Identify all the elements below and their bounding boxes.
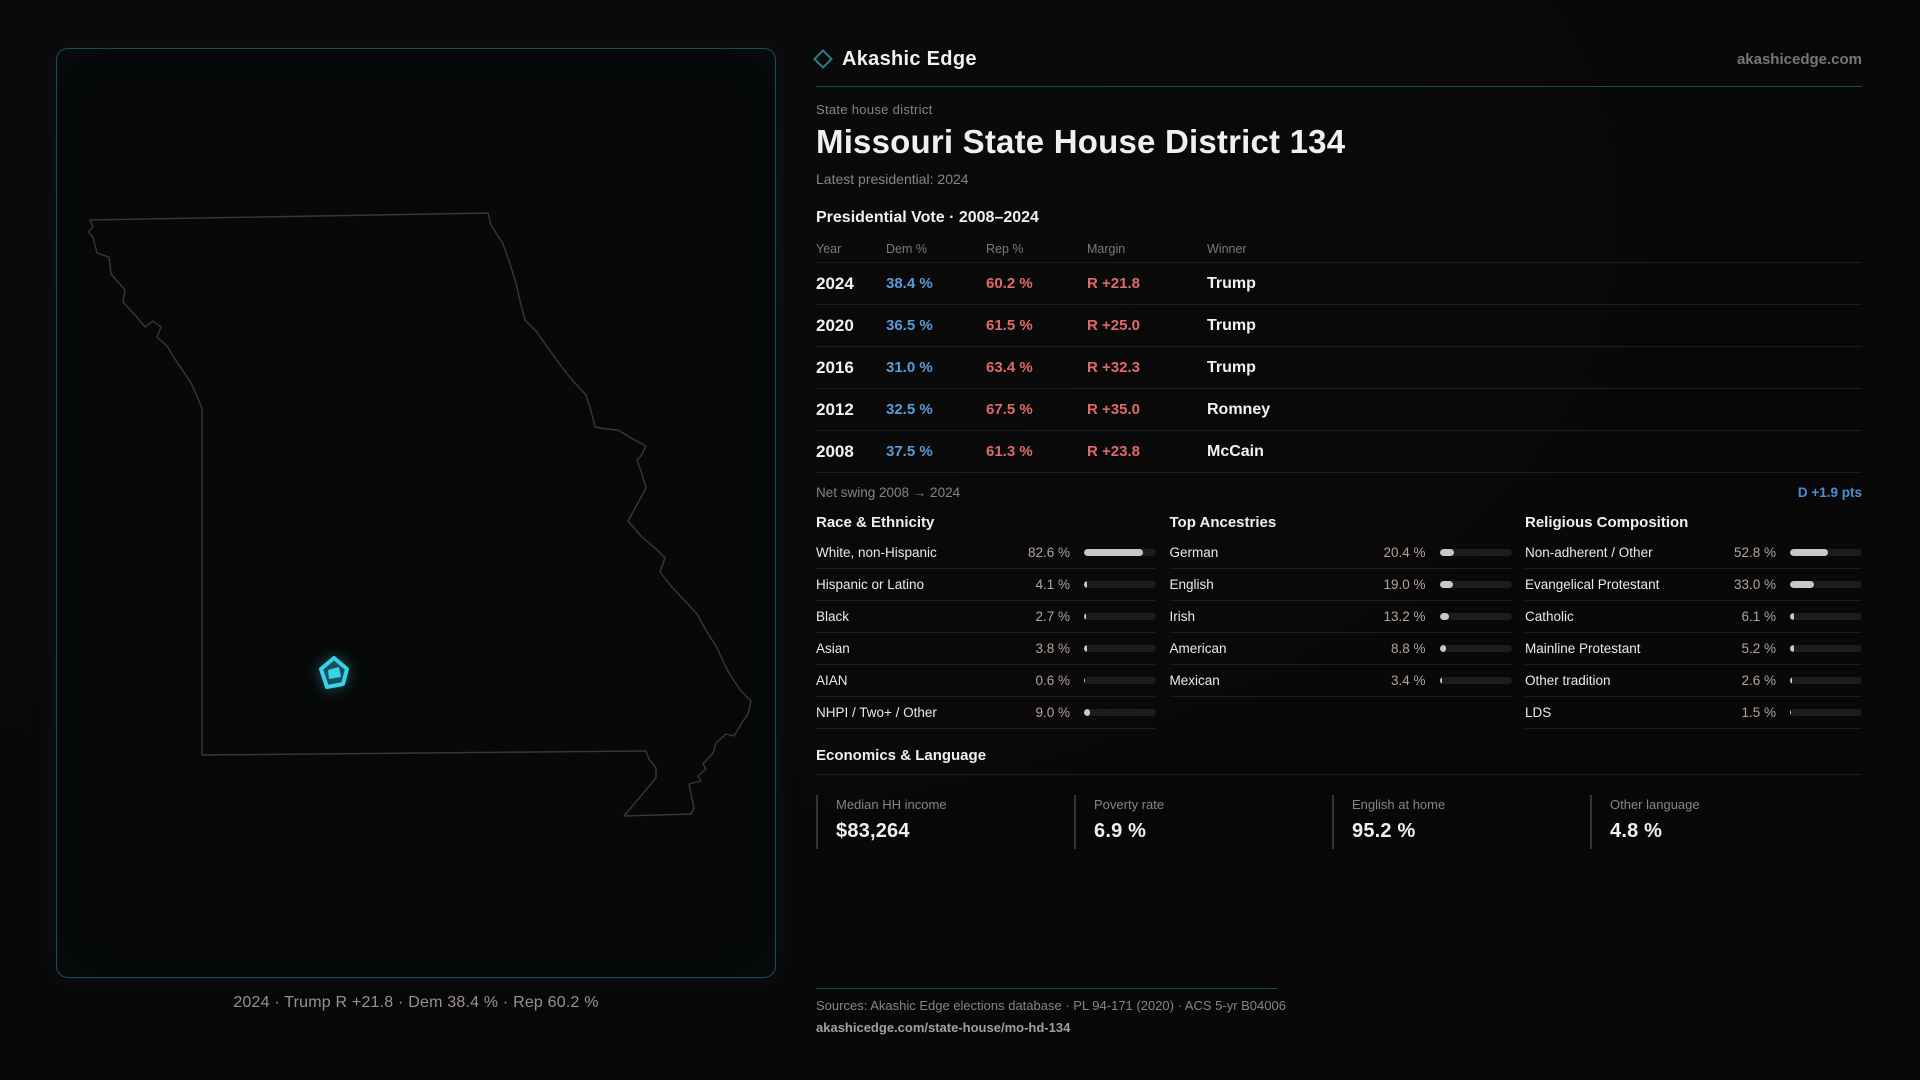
demographic-label: Mainline Protestant xyxy=(1525,641,1724,656)
vote-table-row: 202438.4 %60.2 %R +21.8Trump xyxy=(816,263,1862,305)
cell-rep-pct: 67.5 % xyxy=(986,401,1087,418)
brand-header: Akashic Edge akashicedge.com xyxy=(816,38,1862,80)
state-map-panel xyxy=(56,48,776,978)
demographic-bar xyxy=(1084,581,1156,588)
column-header-rep: Rep % xyxy=(986,242,1087,256)
demographic-label: AIAN xyxy=(816,673,1018,688)
cell-margin: R +23.8 xyxy=(1087,443,1207,460)
demographic-value: 5.2 % xyxy=(1724,641,1776,656)
district-type-eyebrow: State house district xyxy=(816,102,1862,117)
demographic-value: 52.8 % xyxy=(1724,545,1776,560)
demographic-value: 4.1 % xyxy=(1018,577,1070,592)
demographic-value: 2.6 % xyxy=(1724,673,1776,688)
demographic-row: Hispanic or Latino4.1 % xyxy=(816,569,1156,601)
demographic-label: Black xyxy=(816,609,1018,624)
demographic-label: Asian xyxy=(816,641,1018,656)
vote-table-row: 202036.5 %61.5 %R +25.0Trump xyxy=(816,305,1862,347)
demographic-bar-fill xyxy=(1440,581,1454,588)
cell-rep-pct: 63.4 % xyxy=(986,359,1087,376)
cell-year: 2020 xyxy=(816,316,886,336)
demographic-bar xyxy=(1440,613,1512,620)
column-header-winner: Winner xyxy=(1207,242,1862,256)
economics-stat-value: 95.2 % xyxy=(1352,820,1590,843)
demographic-bar-fill xyxy=(1790,709,1791,716)
cell-year: 2016 xyxy=(816,358,886,378)
demographic-label: Non-adherent / Other xyxy=(1525,545,1724,560)
cell-winner: Trump xyxy=(1207,317,1862,335)
demographic-bar-fill xyxy=(1084,581,1087,588)
demographic-bar xyxy=(1440,549,1512,556)
net-swing-label: Net swing 2008 → 2024 xyxy=(816,485,960,500)
demographic-row: AIAN0.6 % xyxy=(816,665,1156,697)
brand-domain-link[interactable]: akashicedge.com xyxy=(1737,51,1862,68)
economics-stat: English at home95.2 % xyxy=(1332,795,1590,849)
demographic-value: 82.6 % xyxy=(1018,545,1070,560)
demographic-row: Other tradition2.6 % xyxy=(1525,665,1862,697)
demographic-column-title: Religious Composition xyxy=(1525,514,1862,531)
economics-stat: Poverty rate6.9 % xyxy=(1074,795,1332,849)
demographic-label: Other tradition xyxy=(1525,673,1724,688)
vote-table-row: 200837.5 %61.3 %R +23.8McCain xyxy=(816,431,1862,473)
demographic-bar xyxy=(1440,677,1512,684)
demographic-column: Religious CompositionNon-adherent / Othe… xyxy=(1525,514,1862,729)
demographic-label: English xyxy=(1170,577,1374,592)
demographic-label: Hispanic or Latino xyxy=(816,577,1018,592)
cell-winner: Trump xyxy=(1207,275,1862,293)
vote-table-row: 201631.0 %63.4 %R +32.3Trump xyxy=(816,347,1862,389)
cell-margin: R +35.0 xyxy=(1087,401,1207,418)
demographic-row: Asian3.8 % xyxy=(816,633,1156,665)
cell-dem-pct: 32.5 % xyxy=(886,401,986,418)
cell-winner: Trump xyxy=(1207,359,1862,377)
demographic-bar xyxy=(1084,709,1156,716)
demographic-column-title: Top Ancestries xyxy=(1170,514,1512,531)
economics-stat-value: 6.9 % xyxy=(1094,820,1332,843)
diamond-logo-icon xyxy=(813,49,833,69)
demographic-row: Non-adherent / Other52.8 % xyxy=(1525,537,1862,569)
cell-year: 2008 xyxy=(816,442,886,462)
cell-rep-pct: 61.3 % xyxy=(986,443,1087,460)
demographic-row: Evangelical Protestant33.0 % xyxy=(1525,569,1862,601)
economics-stat-value: 4.8 % xyxy=(1610,820,1848,843)
demographic-label: White, non-Hispanic xyxy=(816,545,1018,560)
cell-dem-pct: 37.5 % xyxy=(886,443,986,460)
demographic-value: 1.5 % xyxy=(1724,705,1776,720)
cell-dem-pct: 31.0 % xyxy=(886,359,986,376)
demographic-bar xyxy=(1790,677,1862,684)
demographic-row: Mainline Protestant5.2 % xyxy=(1525,633,1862,665)
demographic-label: Irish xyxy=(1170,609,1374,624)
demographic-bar xyxy=(1084,677,1156,684)
demographic-label: American xyxy=(1170,641,1374,656)
demographic-value: 0.6 % xyxy=(1018,673,1070,688)
economics-stat-label: Median HH income xyxy=(836,797,1074,812)
demographic-bar-fill xyxy=(1084,613,1086,620)
demographic-value: 6.1 % xyxy=(1724,609,1776,624)
demographic-bar xyxy=(1790,709,1862,716)
demographic-row: LDS1.5 % xyxy=(1525,697,1862,729)
demographic-row: Black2.7 % xyxy=(816,601,1156,633)
demographic-label: German xyxy=(1170,545,1374,560)
district-marker[interactable] xyxy=(321,658,347,687)
net-swing-value: D +1.9 pts xyxy=(1798,485,1862,500)
missouri-map xyxy=(57,49,777,979)
demographic-label: LDS xyxy=(1525,705,1724,720)
cell-dem-pct: 36.5 % xyxy=(886,317,986,334)
demographic-bar-fill xyxy=(1440,677,1442,684)
vote-table-title: Presidential Vote · 2008–2024 xyxy=(816,209,1862,227)
page-title: Missouri State House District 134 xyxy=(816,123,1862,161)
page: 2024 · Trump R +21.8 · Dem 38.4 % · Rep … xyxy=(0,0,1920,1080)
latest-presidential-note: Latest presidential: 2024 xyxy=(816,171,1862,187)
demographic-row: English19.0 % xyxy=(1170,569,1512,601)
demographic-bar xyxy=(1084,613,1156,620)
demographic-value: 3.4 % xyxy=(1374,673,1426,688)
cell-winner: Romney xyxy=(1207,401,1862,419)
demographic-value: 20.4 % xyxy=(1374,545,1426,560)
demographic-row: American8.8 % xyxy=(1170,633,1512,665)
cell-year: 2024 xyxy=(816,274,886,294)
demographic-bar-fill xyxy=(1790,677,1792,684)
demographic-value: 13.2 % xyxy=(1374,609,1426,624)
footer-permalink-link[interactable]: akashicedge.com/state-house/mo-hd-134 xyxy=(816,1020,1862,1035)
footer-sources: Sources: Akashic Edge elections database… xyxy=(816,998,1862,1013)
demographic-row: Irish13.2 % xyxy=(1170,601,1512,633)
demographic-label: NHPI / Two+ / Other xyxy=(816,705,1018,720)
economics-stats: Median HH income$83,264Poverty rate6.9 %… xyxy=(816,795,1862,849)
demographic-value: 33.0 % xyxy=(1724,577,1776,592)
economics-stat-label: Other language xyxy=(1610,797,1848,812)
demographic-bar xyxy=(1790,645,1862,652)
cell-margin: R +25.0 xyxy=(1087,317,1207,334)
economics-stat-label: Poverty rate xyxy=(1094,797,1332,812)
vote-table-header: YearDem %Rep %MarginWinner xyxy=(816,235,1862,263)
demographic-bar-fill xyxy=(1790,613,1794,620)
cell-dem-pct: 38.4 % xyxy=(886,275,986,292)
column-header-dem: Dem % xyxy=(886,242,986,256)
economics-stat: Other language4.8 % xyxy=(1590,795,1848,849)
demographic-bar xyxy=(1790,613,1862,620)
demographic-row: NHPI / Two+ / Other9.0 % xyxy=(816,697,1156,729)
demographic-bar-fill xyxy=(1790,645,1794,652)
demographic-bar-fill xyxy=(1084,645,1087,652)
demographic-label: Catholic xyxy=(1525,609,1724,624)
footer-divider xyxy=(816,988,1277,989)
cell-rep-pct: 61.5 % xyxy=(986,317,1087,334)
demographic-bar xyxy=(1440,645,1512,652)
demographic-row: Mexican3.4 % xyxy=(1170,665,1512,697)
demographic-bar xyxy=(1790,549,1862,556)
demographic-value: 9.0 % xyxy=(1018,705,1070,720)
vote-table-row: 201232.5 %67.5 %R +35.0Romney xyxy=(816,389,1862,431)
economics-stat: Median HH income$83,264 xyxy=(816,795,1074,849)
demographic-value: 19.0 % xyxy=(1374,577,1426,592)
header-divider xyxy=(816,86,1862,87)
map-caption: 2024 · Trump R +21.8 · Dem 38.4 % · Rep … xyxy=(56,994,776,1012)
demographic-bar xyxy=(1084,645,1156,652)
demographic-column-title: Race & Ethnicity xyxy=(816,514,1156,531)
demographic-bar xyxy=(1440,581,1512,588)
demographic-label: Evangelical Protestant xyxy=(1525,577,1724,592)
demographic-column: Race & EthnicityWhite, non-Hispanic82.6 … xyxy=(816,514,1156,729)
presidential-vote-table: YearDem %Rep %MarginWinner 202438.4 %60.… xyxy=(816,235,1862,473)
demographic-label: Mexican xyxy=(1170,673,1374,688)
demographic-bar xyxy=(1790,581,1862,588)
vote-table-body: 202438.4 %60.2 %R +21.8Trump202036.5 %61… xyxy=(816,263,1862,473)
demographics: Race & EthnicityWhite, non-Hispanic82.6 … xyxy=(816,514,1862,729)
economics-title: Economics & Language xyxy=(816,747,1862,775)
demographic-value: 3.8 % xyxy=(1018,641,1070,656)
cell-margin: R +32.3 xyxy=(1087,359,1207,376)
net-swing-row: Net swing 2008 → 2024 D +1.9 pts xyxy=(816,473,1862,510)
demographic-row: Catholic6.1 % xyxy=(1525,601,1862,633)
demographic-bar-fill xyxy=(1440,549,1455,556)
cell-margin: R +21.8 xyxy=(1087,275,1207,292)
footer: Sources: Akashic Edge elections database… xyxy=(816,988,1862,1035)
demographic-row: White, non-Hispanic82.6 % xyxy=(816,537,1156,569)
report-column: Akashic Edge akashicedge.com State house… xyxy=(816,38,1862,849)
brand-name: Akashic Edge xyxy=(842,48,977,71)
demographic-bar-fill xyxy=(1084,709,1090,716)
economics-stat-value: $83,264 xyxy=(836,820,1074,843)
demographic-bar-fill xyxy=(1790,549,1828,556)
cell-winner: McCain xyxy=(1207,443,1862,461)
cell-rep-pct: 60.2 % xyxy=(986,275,1087,292)
demographic-bar-fill xyxy=(1440,645,1446,652)
demographic-column: Top AncestriesGerman20.4 %English19.0 %I… xyxy=(1170,514,1512,729)
demographic-row: German20.4 % xyxy=(1170,537,1512,569)
missouri-outline xyxy=(88,213,751,816)
demographic-value: 8.8 % xyxy=(1374,641,1426,656)
demographic-bar-fill xyxy=(1084,549,1143,556)
demographic-bar-fill xyxy=(1790,581,1814,588)
cell-year: 2012 xyxy=(816,400,886,420)
demographic-value: 2.7 % xyxy=(1018,609,1070,624)
column-header-year: Year xyxy=(816,242,886,256)
column-header-margin: Margin xyxy=(1087,242,1207,256)
demographic-bar xyxy=(1084,549,1156,556)
demographic-bar-fill xyxy=(1440,613,1450,620)
economics-stat-label: English at home xyxy=(1352,797,1590,812)
